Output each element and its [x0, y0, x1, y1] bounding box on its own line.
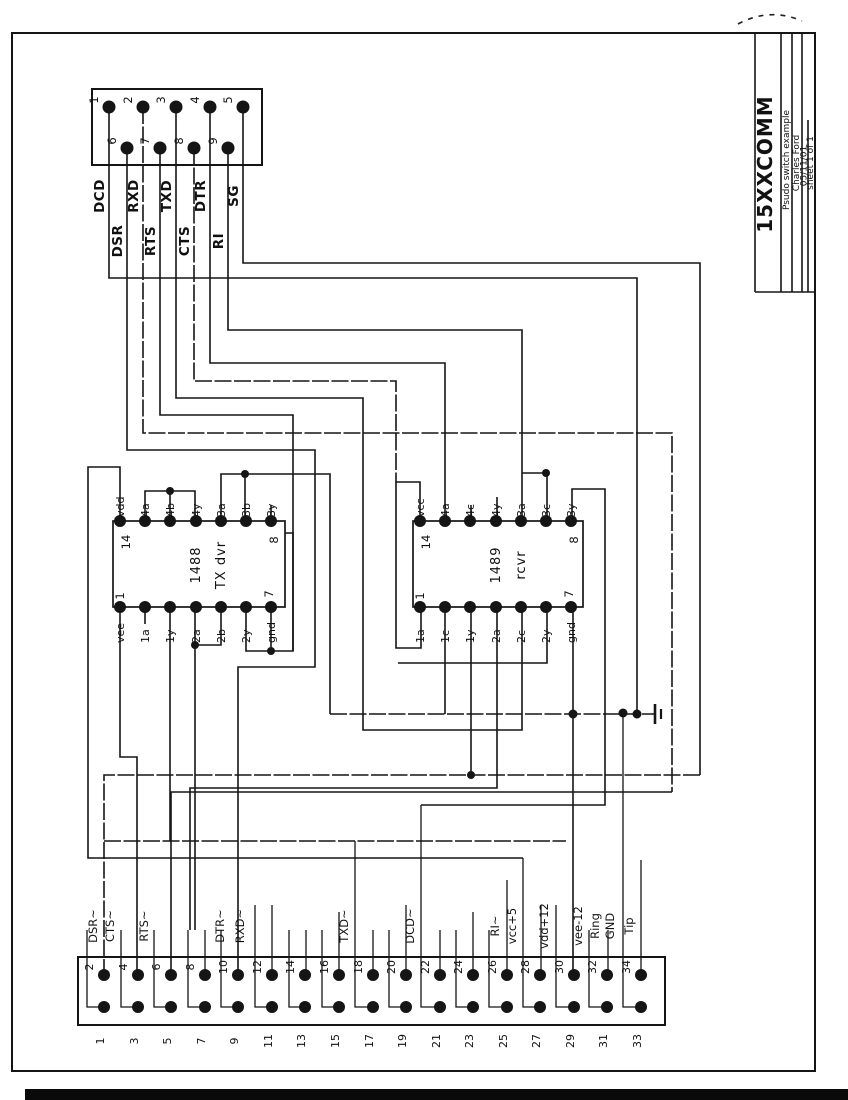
ic-pin-label: 4a [439, 503, 452, 517]
header-pin-number-even: 4 [117, 964, 130, 971]
header-pin-number-even: 12 [251, 960, 264, 974]
header-pin-odd [400, 1001, 412, 1013]
db9-signal-label: RXD [126, 179, 142, 213]
db9-signal-label: CTS [177, 226, 193, 256]
title-block-title: 15XXCOMM [753, 95, 777, 232]
header-pin-number-even: 26 [486, 960, 499, 974]
header-pin-even [132, 969, 144, 981]
header-pin-number-odd: 27 [530, 1034, 543, 1048]
ic-pin [490, 601, 502, 613]
ic-pin-label: 1y [164, 629, 177, 643]
header-pin-even [568, 969, 580, 981]
header-signal-label: RTS~ [137, 910, 151, 941]
header-pin-number-odd: 15 [329, 1034, 342, 1048]
header-signal-label: GND [603, 913, 617, 940]
db9-pin [137, 101, 150, 114]
db9-pin [237, 101, 250, 114]
header-pin-even [501, 969, 513, 981]
ic-pin-label: 1y [464, 629, 477, 643]
header-pin-number-even: 6 [150, 964, 163, 971]
header-pin-number-odd: 21 [430, 1034, 443, 1048]
header-pin-odd [299, 1001, 311, 1013]
header-signal-label: RXD~ [233, 909, 247, 943]
ic-pin [565, 601, 577, 613]
header-signal-label: vee-12 [571, 906, 585, 946]
db9-signal-label: DSR [110, 224, 126, 257]
ic-pin [265, 601, 277, 613]
header-signal-label: vdd+12 [537, 903, 551, 949]
db9-connector: 123456789DCDDSRRXDRTSTXDCTSDTRRISG [87, 89, 262, 257]
ic-pin-label: 2y [240, 629, 253, 643]
ic-1489-receiver: vcc1a4a1c4c1y4y2a3a2c3c2y3ygnd148171489r… [413, 498, 583, 643]
ic-pin-label: gnd [265, 622, 278, 643]
ic-pin-label: vcc [414, 498, 427, 517]
ic-pin-label: 3y [265, 503, 278, 517]
header-pin-number-odd: 29 [564, 1034, 577, 1048]
ic-role-label: TX dvr [214, 541, 229, 590]
ic-pin-label: 4a [139, 503, 152, 517]
ic-corner-number: 1 [113, 592, 127, 599]
db9-pin-number: 3 [154, 96, 168, 103]
header-signal-label: Tip [622, 917, 636, 935]
header-pin-even [232, 969, 244, 981]
db9-pin [222, 142, 235, 155]
header-pin-number-even: 14 [284, 960, 297, 974]
header-signal-label: CTS~ [103, 910, 117, 942]
ic-pin-label: 4c [464, 504, 477, 517]
db9-pin-number: 7 [138, 137, 152, 144]
db9-signal-label: TXD [159, 180, 175, 212]
ic-corner-number: 7 [562, 590, 576, 597]
ic-pin-label: 2a [490, 629, 503, 643]
db9-signal-label: DTR [193, 180, 209, 212]
header-pin-number-even: 28 [519, 960, 532, 974]
header-pin-even [400, 969, 412, 981]
header-pin-number-odd: 13 [295, 1034, 308, 1048]
header-signal-label: TXD~ [337, 909, 351, 943]
ic-pin [439, 601, 451, 613]
header-pin-number-even: 2 [83, 964, 96, 971]
ic-corner-number: 1 [413, 592, 427, 599]
db9-pin [154, 142, 167, 155]
header-pin-number-odd: 19 [396, 1034, 409, 1048]
ic-corner-number: 8 [567, 536, 581, 543]
db9-pin-number: 8 [172, 137, 186, 144]
db9-pin-number: 1 [87, 96, 101, 103]
header-pin-odd [601, 1001, 613, 1013]
header-pin-number-even: 18 [352, 960, 365, 974]
ic-pin [215, 601, 227, 613]
header-pin-even [266, 969, 278, 981]
header-signal-label: Ring [588, 913, 602, 939]
header-pin-odd [367, 1001, 379, 1013]
header-pin-odd [568, 1001, 580, 1013]
header-pin-even [199, 969, 211, 981]
ic-pin-label: 2y [540, 629, 553, 643]
db9-pin-number: 6 [105, 137, 119, 144]
ic-pin [114, 601, 126, 613]
ic-pin [515, 601, 527, 613]
header-pin-number-even: 30 [553, 960, 566, 974]
header-pin-odd [266, 1001, 278, 1013]
header-pin-number-odd: 7 [195, 1038, 208, 1045]
header-pin-even [534, 969, 546, 981]
ic-part-number: 1488 [189, 546, 204, 583]
db9-pin [204, 101, 217, 114]
ic-pin-label: gnd [565, 622, 578, 643]
header-pin-even [635, 969, 647, 981]
header-pin-number-even: 32 [586, 960, 599, 974]
header-connector-body [78, 957, 665, 1025]
header-pin-even [367, 969, 379, 981]
ic-pin [190, 601, 202, 613]
db9-pin [121, 142, 134, 155]
header-pin-number-even: 22 [419, 960, 432, 974]
header-signal-label: DCD~ [403, 908, 417, 943]
db9-pin-number: 5 [221, 96, 235, 103]
header-pin-even [434, 969, 446, 981]
header-pin-number-odd: 1 [94, 1038, 107, 1045]
header-pin-odd [232, 1001, 244, 1013]
header-pin-number-even: 8 [184, 964, 197, 971]
ic-pin-label: 4y [190, 503, 203, 517]
title-block-subtitle: Psudo switch example [782, 110, 792, 211]
ic-pin-label: 4y [490, 503, 503, 517]
db9-signal-label: RTS [143, 226, 159, 256]
db9-pin [170, 101, 183, 114]
db9-body [92, 89, 262, 165]
ic-pin-label: 3a [215, 503, 228, 517]
header-pin-number-odd: 25 [497, 1034, 510, 1048]
header-pin-number-odd: 5 [161, 1038, 174, 1045]
header-pin-odd [501, 1001, 513, 1013]
header-pin-number-odd: 17 [363, 1034, 376, 1048]
header-pin-odd [467, 1001, 479, 1013]
db9-pin-number: 9 [206, 137, 220, 144]
db9-pin-number: 4 [188, 96, 202, 103]
header-pin-odd [199, 1001, 211, 1013]
ic-pin-label: vdd [114, 497, 127, 517]
header-pin-odd [534, 1001, 546, 1013]
ic-pin-label: 3y [565, 503, 578, 517]
header-signal-label: vcc+5 [505, 908, 519, 944]
header-pin-number-odd: 33 [631, 1034, 644, 1048]
db9-pin [103, 101, 116, 114]
ic-pin-label: vee [114, 623, 127, 643]
header-pin-even [165, 969, 177, 981]
ic-pin-label: 1a [414, 629, 427, 643]
db9-signal-label: SG [226, 185, 242, 207]
header-pin-even [601, 969, 613, 981]
title-block-sheet: sheet 1 of 1 [806, 136, 816, 190]
header-signal-label: DSR~ [86, 909, 100, 943]
ic-pin-label: 4b [164, 503, 177, 517]
header-pin-odd [98, 1001, 110, 1013]
header-signal-label: RI~ [488, 915, 502, 936]
ic-pin-label: 2c [515, 630, 528, 643]
ic-pin [164, 601, 176, 613]
ic-pin [464, 601, 476, 613]
header-pin-odd [434, 1001, 446, 1013]
ic-pin-label: 2a [190, 629, 203, 643]
scanned-schematic-page: 15XXCOMM Psudo switch example Charles Fo… [0, 0, 848, 1100]
header-pin-odd [132, 1001, 144, 1013]
ic-pin-label: 3a [515, 503, 528, 517]
header-pin-even [333, 969, 345, 981]
header-pin-number-odd: 11 [262, 1034, 275, 1048]
ground-symbol [655, 704, 661, 724]
header-pin-number-odd: 9 [228, 1038, 241, 1045]
title-block: 15XXCOMM Psudo switch example Charles Fo… [753, 33, 816, 292]
ic-corner-number: 7 [262, 590, 276, 597]
scan-edge-bar-artifact [25, 1089, 848, 1100]
header-pin-number-odd: 23 [463, 1034, 476, 1048]
header-pin-number-even: 16 [318, 960, 331, 974]
ic-corner-number: 8 [267, 536, 281, 543]
ic-pin-label: 3b [240, 503, 253, 517]
ic-pin [540, 601, 552, 613]
ic-pin [414, 601, 426, 613]
ic-pin-label: 3c [540, 504, 553, 517]
ic-pin-label: 1a [139, 629, 152, 643]
page-curl-artifact [738, 15, 802, 24]
header-pin-odd [333, 1001, 345, 1013]
db9-signal-label: DCD [92, 179, 108, 213]
header-pin-even [98, 969, 110, 981]
schematic-canvas: 15XXCOMM Psudo switch example Charles Fo… [0, 0, 848, 1100]
header-pin-even [467, 969, 479, 981]
header-pin-number-even: 20 [385, 960, 398, 974]
ic-role-label: rcvr [514, 550, 529, 579]
header-pin-number-even: 10 [217, 960, 230, 974]
ic-part-number: 1489 [489, 546, 504, 583]
header-connector-34pin: 2468101214161820222426283032341357911131… [78, 903, 665, 1048]
ic-1488-tx-driver: vddvee4a1a4b1y4y2a3a2b3b2y3ygnd148171488… [113, 497, 285, 643]
header-pin-number-even: 24 [452, 960, 465, 974]
db9-pin-number: 2 [121, 96, 135, 103]
header-pin-number-odd: 3 [128, 1038, 141, 1045]
db9-signal-label: RI [211, 233, 227, 249]
header-pin-odd [165, 1001, 177, 1013]
ic-pin [139, 601, 151, 613]
header-signal-label: DTR~ [213, 909, 227, 943]
header-pin-odd [635, 1001, 647, 1013]
db9-pin [188, 142, 201, 155]
header-pin-number-even: 34 [620, 960, 633, 974]
ic-pin-label: 1c [439, 630, 452, 643]
ic-corner-number: 14 [419, 535, 433, 550]
ic-corner-number: 14 [119, 535, 133, 550]
ic-pin-label: 2b [215, 629, 228, 643]
header-pin-even [299, 969, 311, 981]
header-pin-number-odd: 31 [597, 1034, 610, 1048]
ic-pin [240, 601, 252, 613]
